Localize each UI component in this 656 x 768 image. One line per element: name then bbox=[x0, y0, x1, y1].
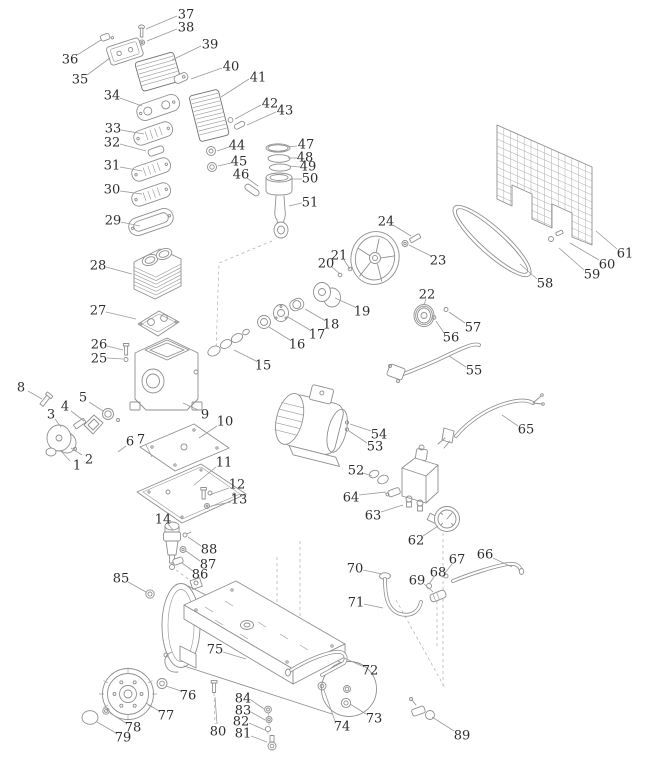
part-88-screw bbox=[183, 532, 191, 537]
part-8-bolt bbox=[39, 392, 53, 407]
leader-line-45 bbox=[218, 163, 231, 166]
part-77-wheel bbox=[99, 669, 157, 720]
part-31-valve-plate bbox=[130, 156, 173, 183]
part-32-reed bbox=[147, 145, 164, 157]
guard-grid-line bbox=[497, 237, 592, 279]
leader-line-70 bbox=[363, 570, 382, 574]
part-85-washer bbox=[146, 590, 154, 598]
leader-line-64 bbox=[359, 492, 386, 495]
leader-line-89 bbox=[432, 717, 454, 731]
part-50-piston bbox=[266, 173, 292, 195]
exploded-diagram-svg: 1234567891011121314151617181920212223242… bbox=[0, 0, 656, 768]
part-65-power-cord bbox=[438, 394, 544, 448]
leader-line-59 bbox=[559, 248, 584, 270]
part-24-bolt bbox=[409, 234, 421, 243]
callout-label-62: 62 bbox=[408, 534, 425, 549]
leader-line-57 bbox=[449, 312, 465, 323]
leader-line-27 bbox=[106, 312, 136, 319]
part-52-unloader-tube bbox=[368, 469, 390, 486]
callout-label-22: 22 bbox=[419, 288, 436, 303]
leader-line-84 bbox=[251, 700, 264, 709]
callout-label-52: 52 bbox=[348, 464, 365, 479]
leader-line-37 bbox=[146, 16, 177, 29]
callout-label-8: 8 bbox=[17, 381, 25, 396]
callout-label-5: 5 bbox=[79, 391, 87, 406]
leader-line-80 bbox=[215, 697, 217, 724]
part-17-flange bbox=[274, 305, 289, 322]
callout-label-13: 13 bbox=[231, 493, 248, 508]
part-22-motor-pulley bbox=[414, 305, 434, 327]
callout-label-84: 84 bbox=[235, 692, 252, 707]
callout-label-61: 61 bbox=[617, 247, 634, 262]
callout-label-71: 71 bbox=[348, 596, 365, 611]
callout-label-12: 12 bbox=[229, 478, 246, 493]
callout-label-24: 24 bbox=[378, 215, 395, 230]
callout-label-68: 68 bbox=[430, 566, 447, 581]
part-18-seal bbox=[288, 297, 305, 313]
callout-label-15: 15 bbox=[255, 359, 272, 374]
part-12-bolt bbox=[201, 488, 207, 500]
leader-line-79 bbox=[97, 722, 116, 733]
leader-line-51 bbox=[289, 203, 302, 206]
leader-line-8 bbox=[28, 391, 42, 399]
part-36-clamp bbox=[100, 32, 114, 43]
callout-label-87: 87 bbox=[200, 558, 217, 573]
callout-label-67: 67 bbox=[449, 553, 466, 568]
callout-label-6: 6 bbox=[126, 435, 134, 450]
callout-label-54: 54 bbox=[371, 428, 388, 443]
leader-line-81 bbox=[251, 736, 267, 742]
part-59-guard-bolt bbox=[549, 230, 564, 242]
callout-label-32: 32 bbox=[104, 136, 121, 151]
callout-label-11: 11 bbox=[216, 456, 233, 471]
leader-line-15 bbox=[234, 350, 256, 361]
leader-line-36 bbox=[77, 40, 101, 55]
callout-label-10: 10 bbox=[217, 415, 234, 430]
leader-line-34 bbox=[120, 98, 142, 106]
part-4-bearing-plate bbox=[84, 415, 103, 434]
guard-grid-line bbox=[497, 230, 592, 272]
part-5-oring bbox=[103, 409, 114, 420]
leader-line-62 bbox=[423, 526, 438, 536]
callout-label-25: 25 bbox=[91, 352, 108, 367]
part-43-bolt bbox=[234, 120, 246, 130]
part-63-pressure-switch bbox=[402, 445, 438, 511]
part-62-pressure-gauge bbox=[427, 507, 459, 532]
leader-line-35 bbox=[87, 58, 110, 75]
leader-line-6 bbox=[118, 446, 126, 452]
part-84-washer bbox=[265, 706, 272, 713]
callout-label-70: 70 bbox=[347, 562, 364, 577]
callout-label-34: 34 bbox=[104, 89, 121, 104]
callout-label-38: 38 bbox=[178, 21, 195, 36]
callout-label-4: 4 bbox=[61, 400, 69, 415]
callout-label-57: 57 bbox=[465, 321, 482, 336]
leader-line-87 bbox=[186, 551, 200, 561]
part-19-hub bbox=[314, 283, 341, 308]
callout-label-18: 18 bbox=[323, 318, 340, 333]
part-34-head-gasket bbox=[135, 92, 182, 122]
part-28-cylinder bbox=[134, 246, 181, 299]
leader-line-26 bbox=[107, 346, 123, 350]
leader-line-42 bbox=[235, 105, 261, 119]
callout-label-31: 31 bbox=[104, 159, 121, 174]
part-81-valve-stem bbox=[268, 736, 276, 751]
leader-line-39 bbox=[172, 46, 201, 60]
callout-label-72: 72 bbox=[362, 664, 379, 679]
callout-label-69: 69 bbox=[409, 574, 426, 589]
callout-label-14: 14 bbox=[155, 513, 172, 528]
part-82-washer bbox=[265, 726, 270, 731]
callout-label-63: 63 bbox=[365, 509, 382, 524]
part-79-cap bbox=[82, 711, 98, 725]
leader-line-65 bbox=[502, 415, 518, 426]
leader-line-29 bbox=[121, 222, 140, 226]
leader-line-17 bbox=[288, 317, 310, 330]
callout-label-65: 65 bbox=[518, 423, 535, 438]
part-58-v-belt bbox=[445, 197, 539, 285]
leader-line-38 bbox=[147, 29, 177, 41]
callout-label-41: 41 bbox=[250, 71, 267, 86]
part-29-gasket bbox=[126, 206, 175, 238]
callout-label-21: 21 bbox=[331, 249, 348, 264]
part-57-screw bbox=[444, 308, 448, 312]
callout-label-73: 73 bbox=[366, 712, 383, 727]
callout-label-7: 7 bbox=[137, 433, 145, 448]
part-49-piston-ring bbox=[270, 164, 291, 171]
callout-label-43: 43 bbox=[277, 104, 294, 119]
part-78-pin bbox=[103, 708, 109, 714]
callout-label-55: 55 bbox=[466, 364, 483, 379]
part-44-nut bbox=[207, 147, 216, 156]
part-51-connecting-rod bbox=[274, 196, 288, 238]
callout-label-66: 66 bbox=[477, 548, 494, 563]
part-1-crankshaft bbox=[46, 418, 86, 456]
callout-label-44: 44 bbox=[229, 139, 246, 154]
callout-label-51: 51 bbox=[302, 196, 319, 211]
leader-line-61 bbox=[596, 231, 617, 249]
part-motor bbox=[269, 378, 357, 466]
leader-line-58 bbox=[520, 264, 537, 279]
leader-line-71 bbox=[364, 604, 383, 608]
part-26-bolt bbox=[123, 344, 128, 356]
callout-label-75: 75 bbox=[207, 643, 224, 658]
leader-line-41 bbox=[221, 79, 249, 97]
leader-line-53 bbox=[349, 431, 367, 443]
callout-label-33: 33 bbox=[105, 122, 122, 137]
part-80-bolt bbox=[211, 680, 217, 692]
leader-line-24 bbox=[393, 225, 411, 236]
part-41-cylinder-head bbox=[189, 89, 229, 142]
leader-line-85 bbox=[128, 582, 146, 592]
callout-label-39: 39 bbox=[202, 38, 219, 53]
callout-label-30: 30 bbox=[104, 183, 121, 198]
part-68-fitting bbox=[427, 584, 432, 589]
leader-line-4 bbox=[71, 411, 84, 421]
part-37-bolt bbox=[139, 25, 145, 37]
callout-label-85: 85 bbox=[113, 572, 130, 587]
part-15-fittings bbox=[206, 328, 250, 358]
part-30-valve-plate bbox=[130, 181, 173, 208]
callout-label-28: 28 bbox=[90, 259, 107, 274]
part-61-belt-guard bbox=[497, 125, 592, 279]
callout-label-2: 2 bbox=[85, 453, 93, 468]
callout-label-74: 74 bbox=[334, 720, 351, 735]
part-20-flywheel bbox=[346, 227, 404, 289]
leader-line-55 bbox=[449, 356, 466, 367]
part-16-bearing bbox=[258, 316, 271, 329]
part-76-washer bbox=[157, 679, 167, 689]
part-64-fitting bbox=[385, 487, 401, 498]
part-39-head-cover bbox=[135, 52, 182, 92]
part-47-piston-ring bbox=[266, 144, 290, 152]
leader-line-43 bbox=[247, 112, 276, 125]
callout-label-50: 50 bbox=[302, 172, 319, 187]
callout-label-1: 1 bbox=[73, 459, 81, 474]
leader-line-44 bbox=[217, 147, 229, 151]
part-46-piston-pin bbox=[244, 183, 261, 197]
callout-label-46: 46 bbox=[233, 168, 250, 183]
callout-label-36: 36 bbox=[62, 53, 79, 68]
callout-label-89: 89 bbox=[454, 729, 471, 744]
leader-line-60 bbox=[570, 243, 599, 260]
part-87-knob bbox=[180, 547, 186, 553]
leader-line-5 bbox=[89, 402, 103, 411]
callout-label-16: 16 bbox=[289, 338, 306, 353]
callout-label-56: 56 bbox=[443, 331, 460, 346]
leader-line-16 bbox=[269, 327, 290, 340]
callout-label-40: 40 bbox=[223, 60, 240, 75]
part-89-drain-cock bbox=[410, 698, 435, 720]
part-23-washer bbox=[402, 241, 408, 247]
callout-label-3: 3 bbox=[47, 408, 55, 423]
callout-label-58: 58 bbox=[537, 277, 554, 292]
part-11-base-plate bbox=[137, 464, 246, 523]
callout-label-79: 79 bbox=[115, 731, 132, 746]
part-83-washer bbox=[266, 717, 272, 723]
leader-line-23 bbox=[409, 245, 431, 256]
callout-label-27: 27 bbox=[90, 304, 107, 319]
part-45-nut bbox=[208, 163, 217, 172]
leader-line-83 bbox=[251, 712, 265, 720]
callout-label-26: 26 bbox=[91, 338, 108, 353]
callout-label-19: 19 bbox=[354, 305, 371, 320]
callout-label-23: 23 bbox=[430, 254, 447, 269]
part-48-piston-ring bbox=[268, 155, 290, 163]
callout-label-64: 64 bbox=[343, 491, 360, 506]
guard-grid-line bbox=[497, 223, 592, 265]
leader-line-63 bbox=[381, 505, 403, 512]
part-42-screw bbox=[228, 118, 233, 123]
callout-label-9: 9 bbox=[201, 408, 209, 423]
leader-line-25 bbox=[107, 358, 123, 359]
leader-line-88 bbox=[188, 537, 201, 546]
leader-line-18 bbox=[305, 309, 324, 320]
leader-line-12 bbox=[209, 488, 229, 495]
part-27-cylinder-gasket bbox=[138, 311, 179, 336]
callout-label-77: 77 bbox=[158, 709, 175, 724]
leader-line-82 bbox=[249, 723, 265, 730]
callout-label-35: 35 bbox=[72, 73, 89, 88]
leader-line-10 bbox=[199, 426, 217, 438]
part-33-valve-plate bbox=[132, 120, 175, 147]
leader-line-28 bbox=[106, 267, 132, 274]
callout-label-29: 29 bbox=[105, 214, 122, 229]
leader-line-40 bbox=[191, 68, 222, 79]
callout-label-60: 60 bbox=[599, 258, 616, 273]
part-9-crankcase bbox=[130, 338, 202, 410]
leader-line-54 bbox=[350, 424, 371, 431]
callout-label-88: 88 bbox=[201, 543, 218, 558]
callout-label-80: 80 bbox=[210, 725, 227, 740]
callout-label-76: 76 bbox=[180, 689, 197, 704]
part-13-washer bbox=[204, 503, 209, 508]
diagram-canvas: 1234567891011121314151617181920212223242… bbox=[0, 0, 656, 768]
part-25-washer bbox=[124, 358, 128, 362]
